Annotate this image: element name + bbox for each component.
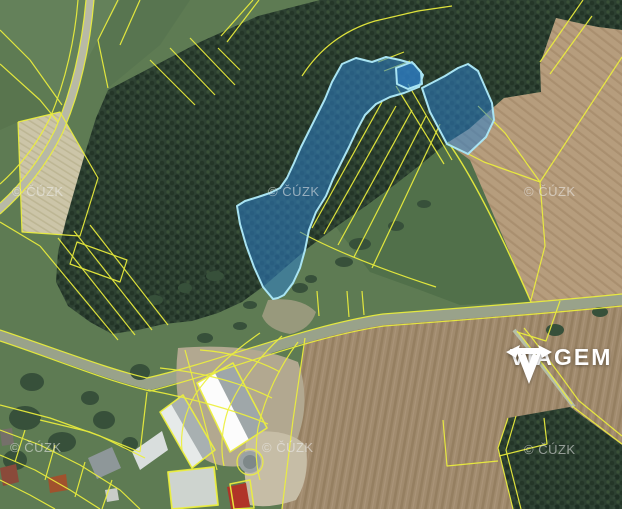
map-container[interactable]: © ČÚZK © ČÚZK © ČÚZK © ČÚZK © ČÚZK © ČÚZ… bbox=[0, 0, 622, 509]
aerial-imagery bbox=[0, 0, 622, 509]
terrain-layers bbox=[0, 0, 622, 509]
